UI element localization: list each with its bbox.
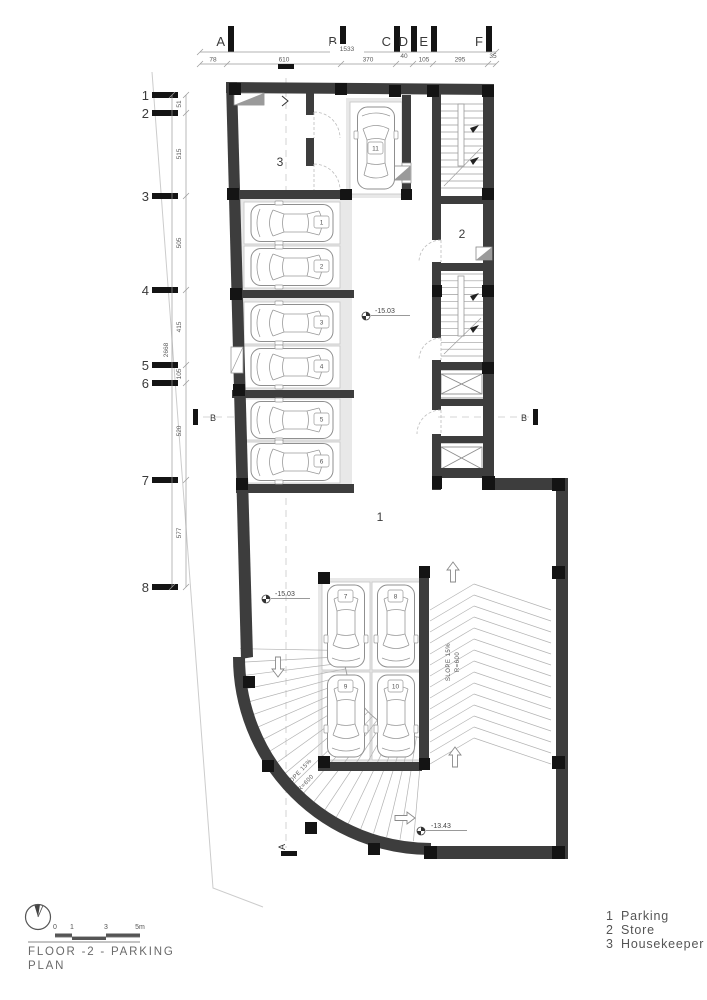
ramp-up-arrow (449, 747, 461, 767)
grid-number: 5 (142, 358, 149, 373)
title-block: 0 1 3 5m FLOOR -2 - PARKING PLAN (26, 905, 175, 973)
top-axis: A B C D E F 1533 78 610 370 40 105 295 3… (197, 26, 499, 67)
dim-seg: 577 (176, 527, 183, 538)
ramp-up-arrow (447, 562, 459, 582)
scale-tick: 0 (53, 924, 57, 931)
legend-label: Housekeeper (621, 937, 704, 951)
ramp-straight: SLOPE 15% R=600 (430, 562, 551, 767)
grid-number: 1 (142, 88, 149, 103)
scale-bar: 0 1 3 5m (53, 924, 145, 940)
dim-seg: 105 (176, 368, 183, 379)
dim-seg: 515 (176, 148, 183, 159)
dim-seg: 51 (176, 100, 183, 108)
spot-number: 6 (320, 459, 324, 466)
ramp-exit-arrow (395, 812, 415, 824)
legend-num: 3 (606, 937, 613, 951)
dim-seg: 35 (489, 53, 497, 60)
section-letter: A (277, 844, 287, 850)
grid-number: 3 (142, 189, 149, 204)
ramp-straight-label-2: R=600 (455, 652, 461, 673)
elevator-shafts (437, 370, 486, 473)
spot-number: 8 (394, 594, 398, 601)
ramp-straight-label-1: SLOPE 15% (446, 643, 452, 681)
spot-number: 2 (320, 264, 324, 271)
section-marker-b-right: B (521, 409, 538, 425)
legend-label: Store (621, 923, 655, 937)
axis-letter-d: D (399, 34, 408, 49)
dim-seg: 78 (209, 57, 217, 64)
legend-num: 1 (606, 909, 613, 923)
scale-tick: 3 (104, 924, 108, 931)
legend: 1 Parking 2 Store 3 Housekeeper (606, 909, 704, 951)
dim-seg: 415 (176, 321, 183, 332)
legend-num: 2 (606, 923, 613, 937)
spot-number: 9 (344, 684, 348, 691)
north-indicator-icon (26, 905, 51, 930)
dim-seg: 520 (176, 425, 183, 436)
dim-total-height: 2668 (163, 342, 170, 357)
staircase-mid (441, 274, 483, 356)
axis-letter-c: C (382, 34, 391, 49)
dim-total-width: 1533 (340, 46, 355, 53)
spot-number: 5 (320, 417, 324, 424)
dim-seg: 370 (363, 57, 374, 64)
left-grid: 1 2 3 4 5 6 7 8 51 515 505 415 105 520 5… (142, 88, 189, 595)
section-letter: B (210, 413, 216, 423)
level-marker: -15.03 (362, 308, 410, 320)
axis-letter-e: E (419, 34, 428, 49)
room-label-housekeeper: 3 (277, 155, 284, 169)
level-marker: -15.03 (262, 591, 310, 603)
dim-seg: 105 (419, 57, 430, 64)
axis-letter-f: F (475, 34, 483, 49)
vent-box (476, 247, 492, 260)
spot-number: 4 (320, 364, 324, 371)
dim-seg: 610 (279, 57, 290, 64)
grid-number: 7 (142, 473, 149, 488)
floor-plan-drawing: A B C D E F 1533 78 610 370 40 105 295 3… (0, 0, 707, 1000)
staircase-top (441, 104, 483, 188)
dim-seg: 505 (176, 237, 183, 248)
floor-plan-page: A B C D E F 1533 78 610 370 40 105 295 3… (0, 0, 707, 1000)
scale-tick: 1 (70, 924, 74, 931)
section-letter: B (521, 413, 527, 423)
dim-seg: 40 (400, 53, 408, 60)
level-marker: -13.43 (417, 823, 467, 835)
axis-letter-a: A (216, 34, 225, 49)
grid-number: 6 (142, 376, 149, 391)
spot-number: 1 (320, 220, 324, 227)
room-label-store: 2 (459, 227, 466, 241)
grid-number: 8 (142, 580, 149, 595)
spot-number: 10 (392, 684, 400, 691)
spot-number: 7 (344, 594, 348, 601)
level-value: -13.43 (431, 823, 451, 830)
vent-box (394, 166, 410, 180)
level-value: -15.03 (275, 591, 295, 598)
scale-tick: 5m (135, 924, 145, 931)
dim-seg: 295 (455, 57, 466, 64)
drawing-title-line2: PLAN (28, 960, 65, 972)
legend-label: Parking (621, 909, 669, 923)
spot-number: 3 (320, 320, 324, 327)
spot-number: 11 (372, 146, 379, 153)
room-label-parking: 1 (377, 510, 384, 524)
grid-number: 2 (142, 106, 149, 121)
grid-number: 4 (142, 283, 149, 298)
level-value: -15.03 (375, 308, 395, 315)
section-marker-a-bottom: A (277, 844, 297, 856)
drawing-title-line1: FLOOR -2 - PARKING (28, 946, 175, 958)
